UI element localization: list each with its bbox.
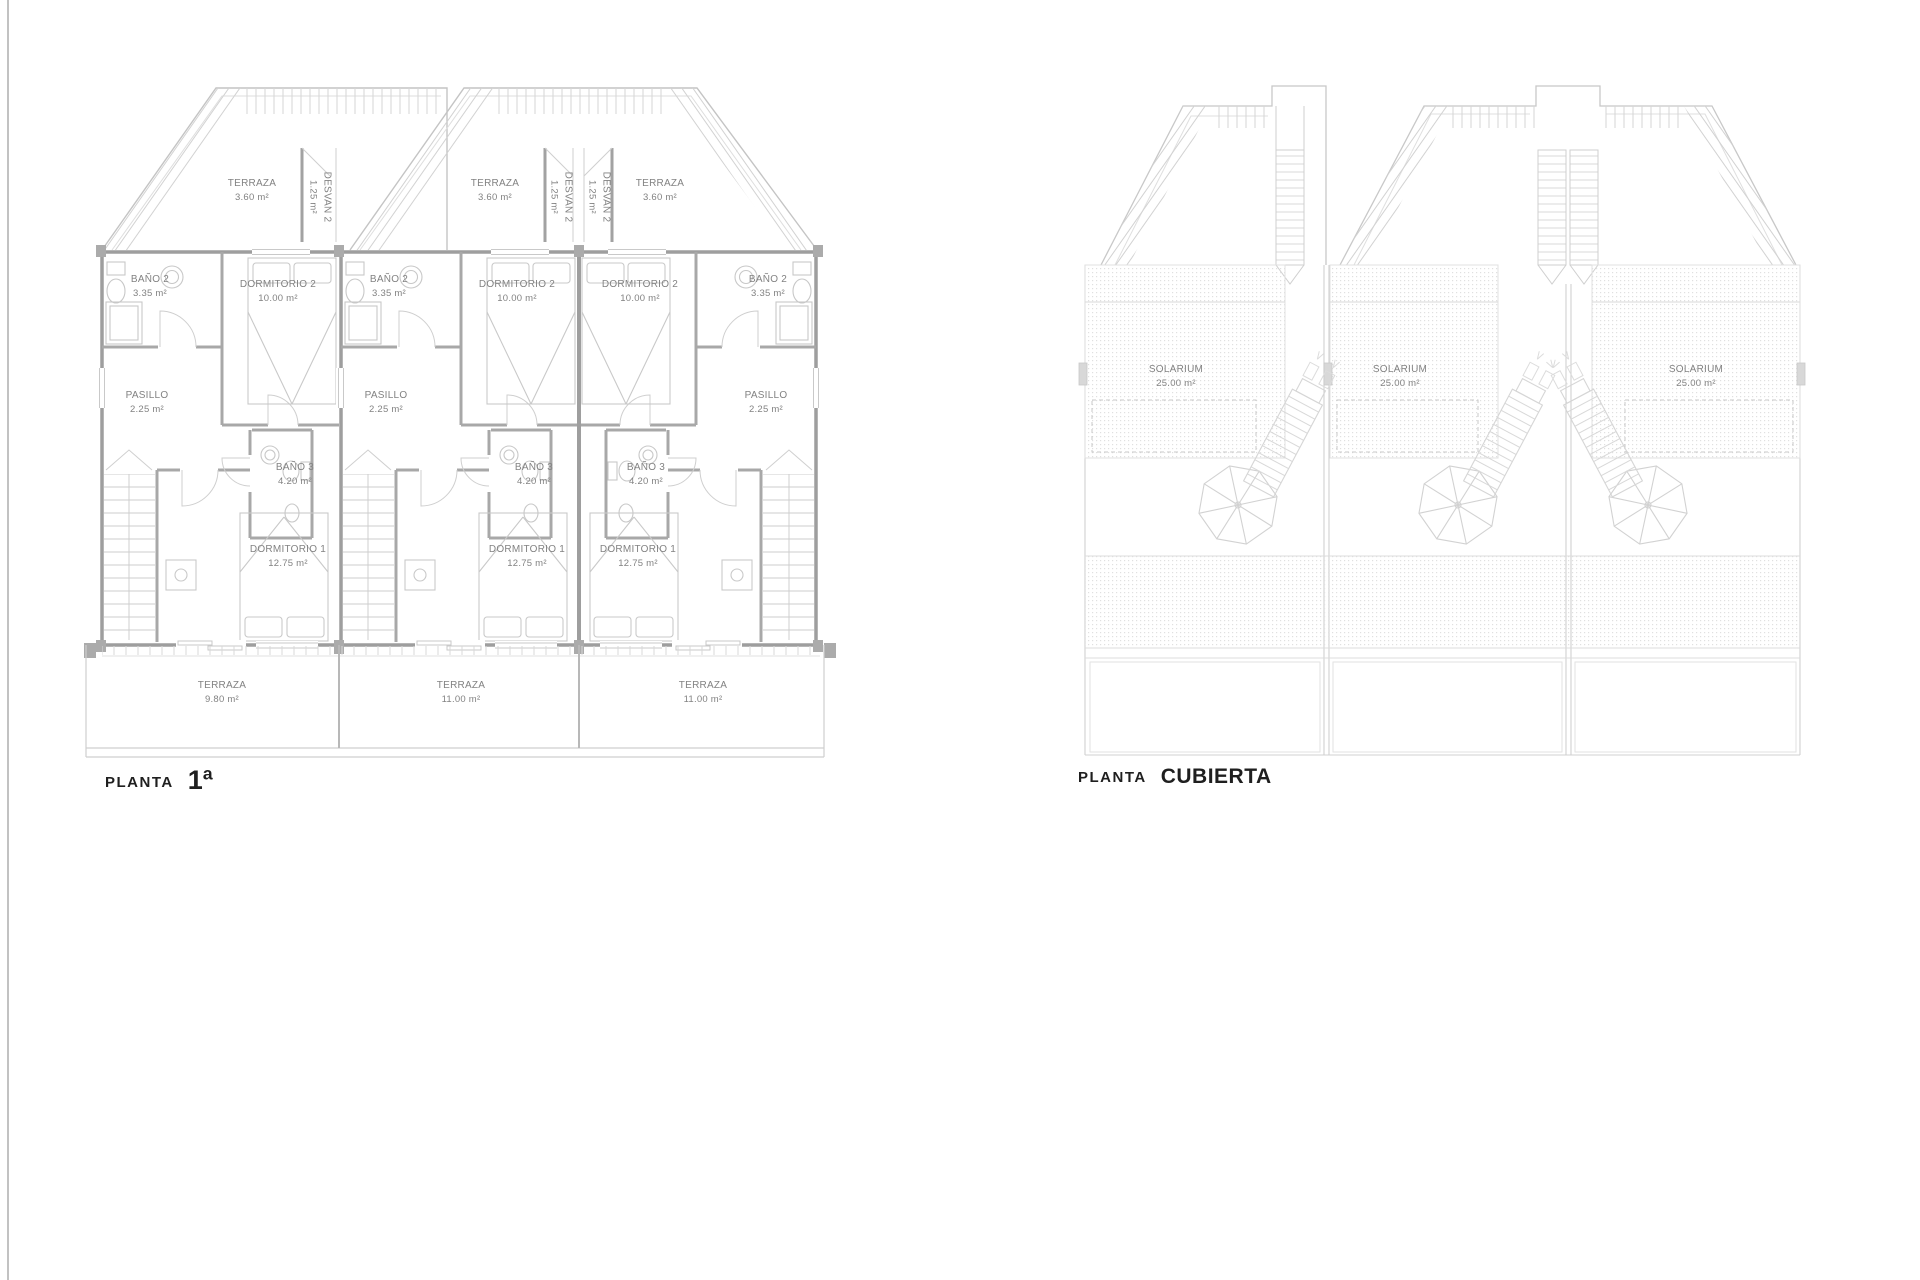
cubierta-hatched-band bbox=[1085, 556, 1800, 658]
room-label-dormitorio1-u3: DORMITORIO 112.75 m² bbox=[600, 542, 676, 571]
room-label-desvan-u1: DESVAN 21.25 m² bbox=[305, 172, 334, 223]
room-label-terraza-top-u3: TERRAZA3.60 m² bbox=[636, 176, 684, 205]
roof-slope-hatch bbox=[102, 88, 246, 250]
plan-cubierta bbox=[1079, 86, 1805, 755]
roof-stair-run bbox=[494, 88, 667, 114]
room-label-terraza-top-u2: TERRAZA3.60 m² bbox=[471, 176, 519, 205]
planta1-roof-zone bbox=[102, 88, 817, 250]
blueprint-sheet: TERRAZA3.60 m² DESVAN 21.25 m² BAÑO 23.3… bbox=[0, 0, 1920, 1280]
room-label-bano3-u2: BAÑO 34.20 m² bbox=[515, 460, 553, 489]
room-label-solarium-u3: SOLARIUM25.00 m² bbox=[1669, 362, 1723, 391]
room-label-terraza-top-u1: TERRAZA3.60 m² bbox=[228, 176, 276, 205]
room-label-desvan-u3: DESVAN 21.25 m² bbox=[584, 172, 613, 223]
room-label-terraza-bottom-u2: TERRAZA11.00 m² bbox=[437, 678, 485, 707]
room-label-bano2-u1: BAÑO 23.35 m² bbox=[131, 272, 169, 301]
room-label-bano2-u2: BAÑO 23.35 m² bbox=[370, 272, 408, 301]
unit-1-floorplan bbox=[97, 247, 339, 650]
room-label-dormitorio1-u2: DORMITORIO 112.75 m² bbox=[489, 542, 565, 571]
room-label-pasillo-u2: PASILLO2.25 m² bbox=[365, 388, 408, 417]
cubierta-lower-boxes bbox=[1090, 662, 1796, 752]
room-label-desvan-u2: DESVAN 21.25 m² bbox=[546, 172, 575, 223]
roof-slope-hatch bbox=[667, 88, 817, 250]
room-label-terraza-bottom-u1: TERRAZA9.80 m² bbox=[198, 678, 246, 707]
plans-drawing bbox=[0, 0, 1920, 1280]
unit-3-floorplan bbox=[579, 247, 821, 650]
room-label-bano3-u1: BAÑO 34.20 m² bbox=[276, 460, 314, 489]
plan-caption-cubierta: PLANTACUBIERTA bbox=[1078, 765, 1272, 789]
roof-stair-run bbox=[246, 88, 441, 114]
plan-planta1 bbox=[84, 88, 836, 757]
room-label-terraza-bottom-u3: TERRAZA11.00 m² bbox=[679, 678, 727, 707]
room-label-pasillo-u3: PASILLO2.25 m² bbox=[745, 388, 788, 417]
room-label-pasillo-u1: PASILLO2.25 m² bbox=[126, 388, 169, 417]
room-label-dormitorio1-u1: DORMITORIO 112.75 m² bbox=[250, 542, 326, 571]
room-label-bano3-u3: BAÑO 34.20 m² bbox=[627, 460, 665, 489]
cubierta-roof-zone bbox=[1101, 86, 1796, 284]
plan-caption-planta1: PLANTA1ª bbox=[105, 765, 213, 796]
room-label-dormitorio2-u3: DORMITORIO 210.00 m² bbox=[602, 277, 678, 306]
room-label-dormitorio2-u2: DORMITORIO 210.00 m² bbox=[479, 277, 555, 306]
room-label-solarium-u2: SOLARIUM25.00 m² bbox=[1373, 362, 1427, 391]
room-label-solarium-u1: SOLARIUM25.00 m² bbox=[1149, 362, 1203, 391]
room-label-dormitorio2-u1: DORMITORIO 210.00 m² bbox=[240, 277, 316, 306]
room-label-bano2-u3: BAÑO 23.35 m² bbox=[749, 272, 787, 301]
unit-2-floorplan bbox=[336, 247, 578, 650]
